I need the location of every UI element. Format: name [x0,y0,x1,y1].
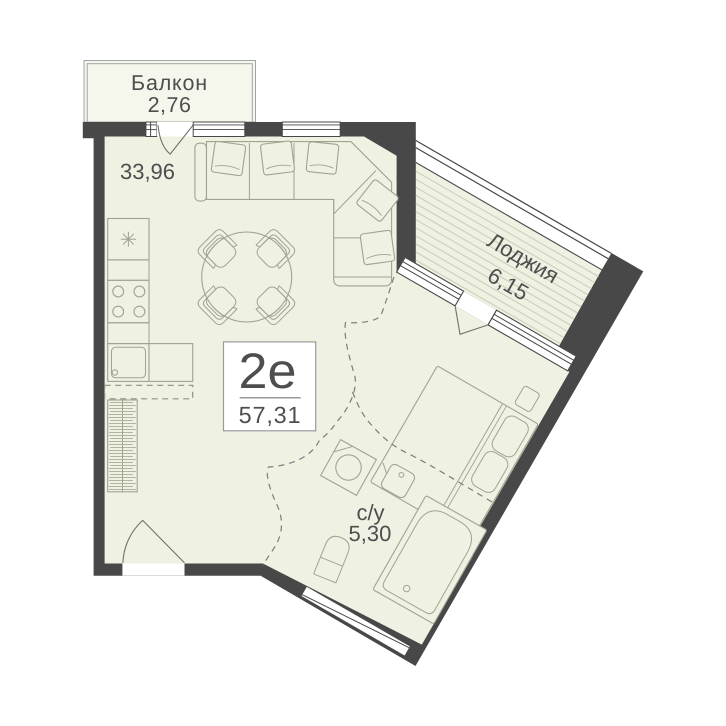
svg-text:2,76: 2,76 [148,93,192,117]
svg-text:33,96: 33,96 [120,159,175,184]
svg-text:57,31: 57,31 [239,402,302,428]
svg-text:Балкон: Балкон [131,71,208,95]
svg-text:2е: 2е [239,343,297,399]
svg-text:5,30: 5,30 [348,521,391,546]
